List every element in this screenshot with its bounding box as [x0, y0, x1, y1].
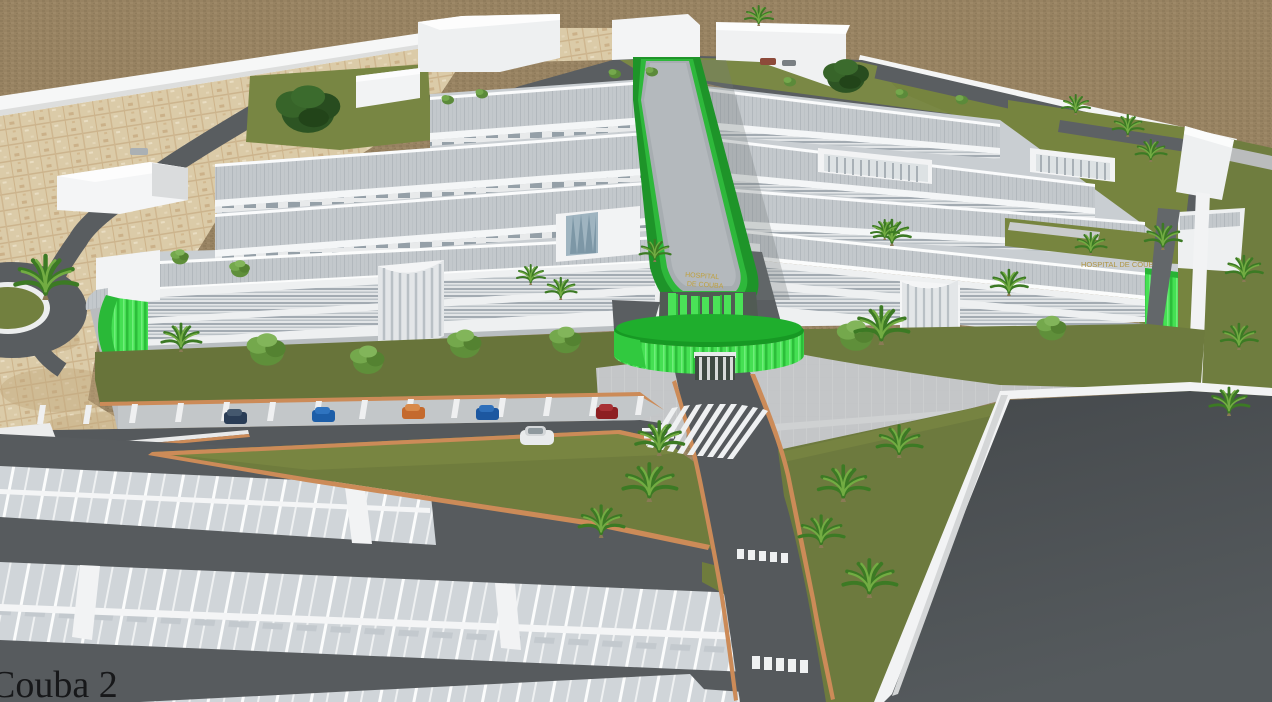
svg-text:Couba 2: Couba 2	[0, 664, 118, 702]
svg-text:HOSPITAL DE COUBA: HOSPITAL DE COUBA	[1081, 260, 1159, 269]
